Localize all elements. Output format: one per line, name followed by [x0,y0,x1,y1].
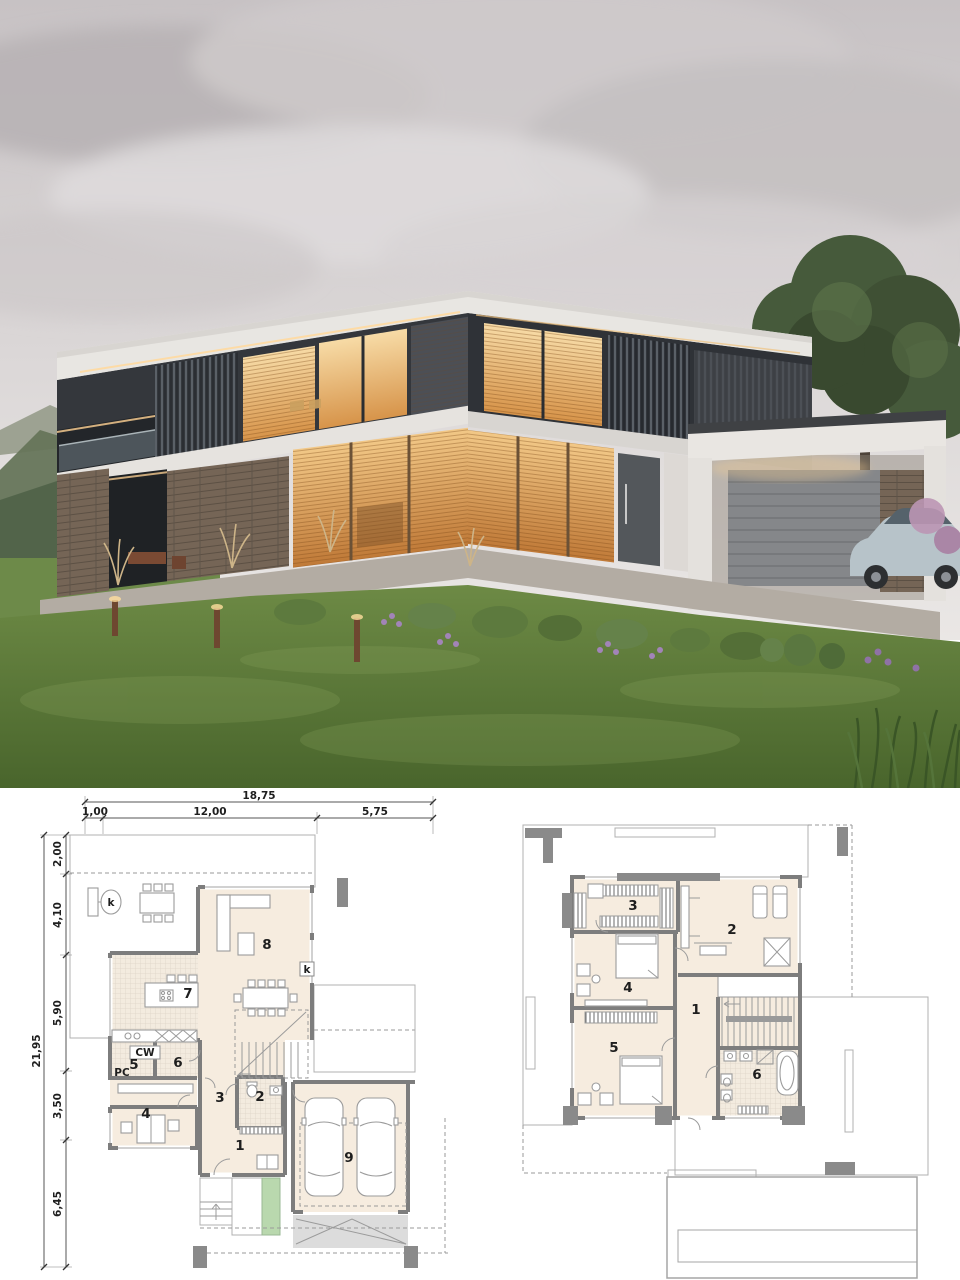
living-room-floor [198,887,312,1040]
dim-width-seg-3: 5,75 [362,806,388,818]
gf-room-4: 4 [141,1106,150,1122]
architecture-presentation: 18,75 1,00 12,00 5,75 21,95 2,00 4,10 5,… [0,0,960,1280]
uf-room-1: 1 [691,1002,700,1018]
dim-depth-seg-2: 4,10 [52,902,64,928]
dim-depth-seg-3: 5,90 [52,1000,64,1026]
terrace-furniture: k [88,884,174,922]
stone-pier [57,469,109,597]
uf-room-4: 4 [623,980,632,996]
pergola-hatch [526,997,535,1069]
dim-depth-seg-5: 6,45 [52,1191,64,1217]
terrace-k-label: k [108,897,116,909]
ground-floor-plan: k [70,835,448,1268]
pergola-hatch [845,1050,853,1132]
exterior-render [0,0,960,788]
gf-room-9: 9 [344,1150,353,1166]
uf-room-3: 3 [628,898,637,914]
gf-room-3: 3 [215,1090,224,1106]
dim-total-width: 18,75 [242,790,275,802]
gf-room-6: 6 [173,1055,182,1071]
floor-plans: 18,75 1,00 12,00 5,75 21,95 2,00 4,10 5,… [0,788,960,1280]
car-top-view [354,1098,398,1196]
upper-floor-plan: 3 2 4 1 5 6 [523,825,928,1278]
gf-room-1: 1 [235,1138,244,1154]
dimension-lines-top: 18,75 1,00 12,00 5,75 [82,790,436,834]
white-wall [664,453,690,572]
lower-footprint-outline [667,1177,917,1278]
pergola-hatch [615,828,715,837]
pier [404,1246,418,1268]
dim-depth-seg-1: 2,00 [52,841,64,867]
pier [193,1246,207,1268]
dimension-lines-left: 21,95 2,00 4,10 5,90 3,50 6,45 [31,832,72,1270]
gf-room-7: 7 [183,986,192,1002]
pc-label: PC [114,1067,130,1079]
dim-width-seg-1: 1,00 [82,806,108,818]
dim-width-seg-2: 12,00 [193,806,226,818]
pier [337,878,348,907]
front-door [618,453,660,566]
uf-room-5: 5 [609,1040,618,1056]
gf-room-2: 2 [255,1089,264,1105]
planter-strip [262,1178,280,1235]
k-wall-label: k [304,964,312,976]
gf-room-8: 8 [262,937,271,953]
dim-depth-seg-4: 3,50 [52,1093,64,1119]
car-top-view [302,1098,346,1196]
dim-total-depth: 21,95 [31,1034,43,1067]
uf-room-2: 2 [727,922,736,938]
stair-void [718,975,800,997]
interior-silhouette [357,502,403,548]
uf-room-6: 6 [752,1067,761,1083]
gf-room-5: 5 [129,1057,138,1073]
side-terrace [314,985,415,1072]
